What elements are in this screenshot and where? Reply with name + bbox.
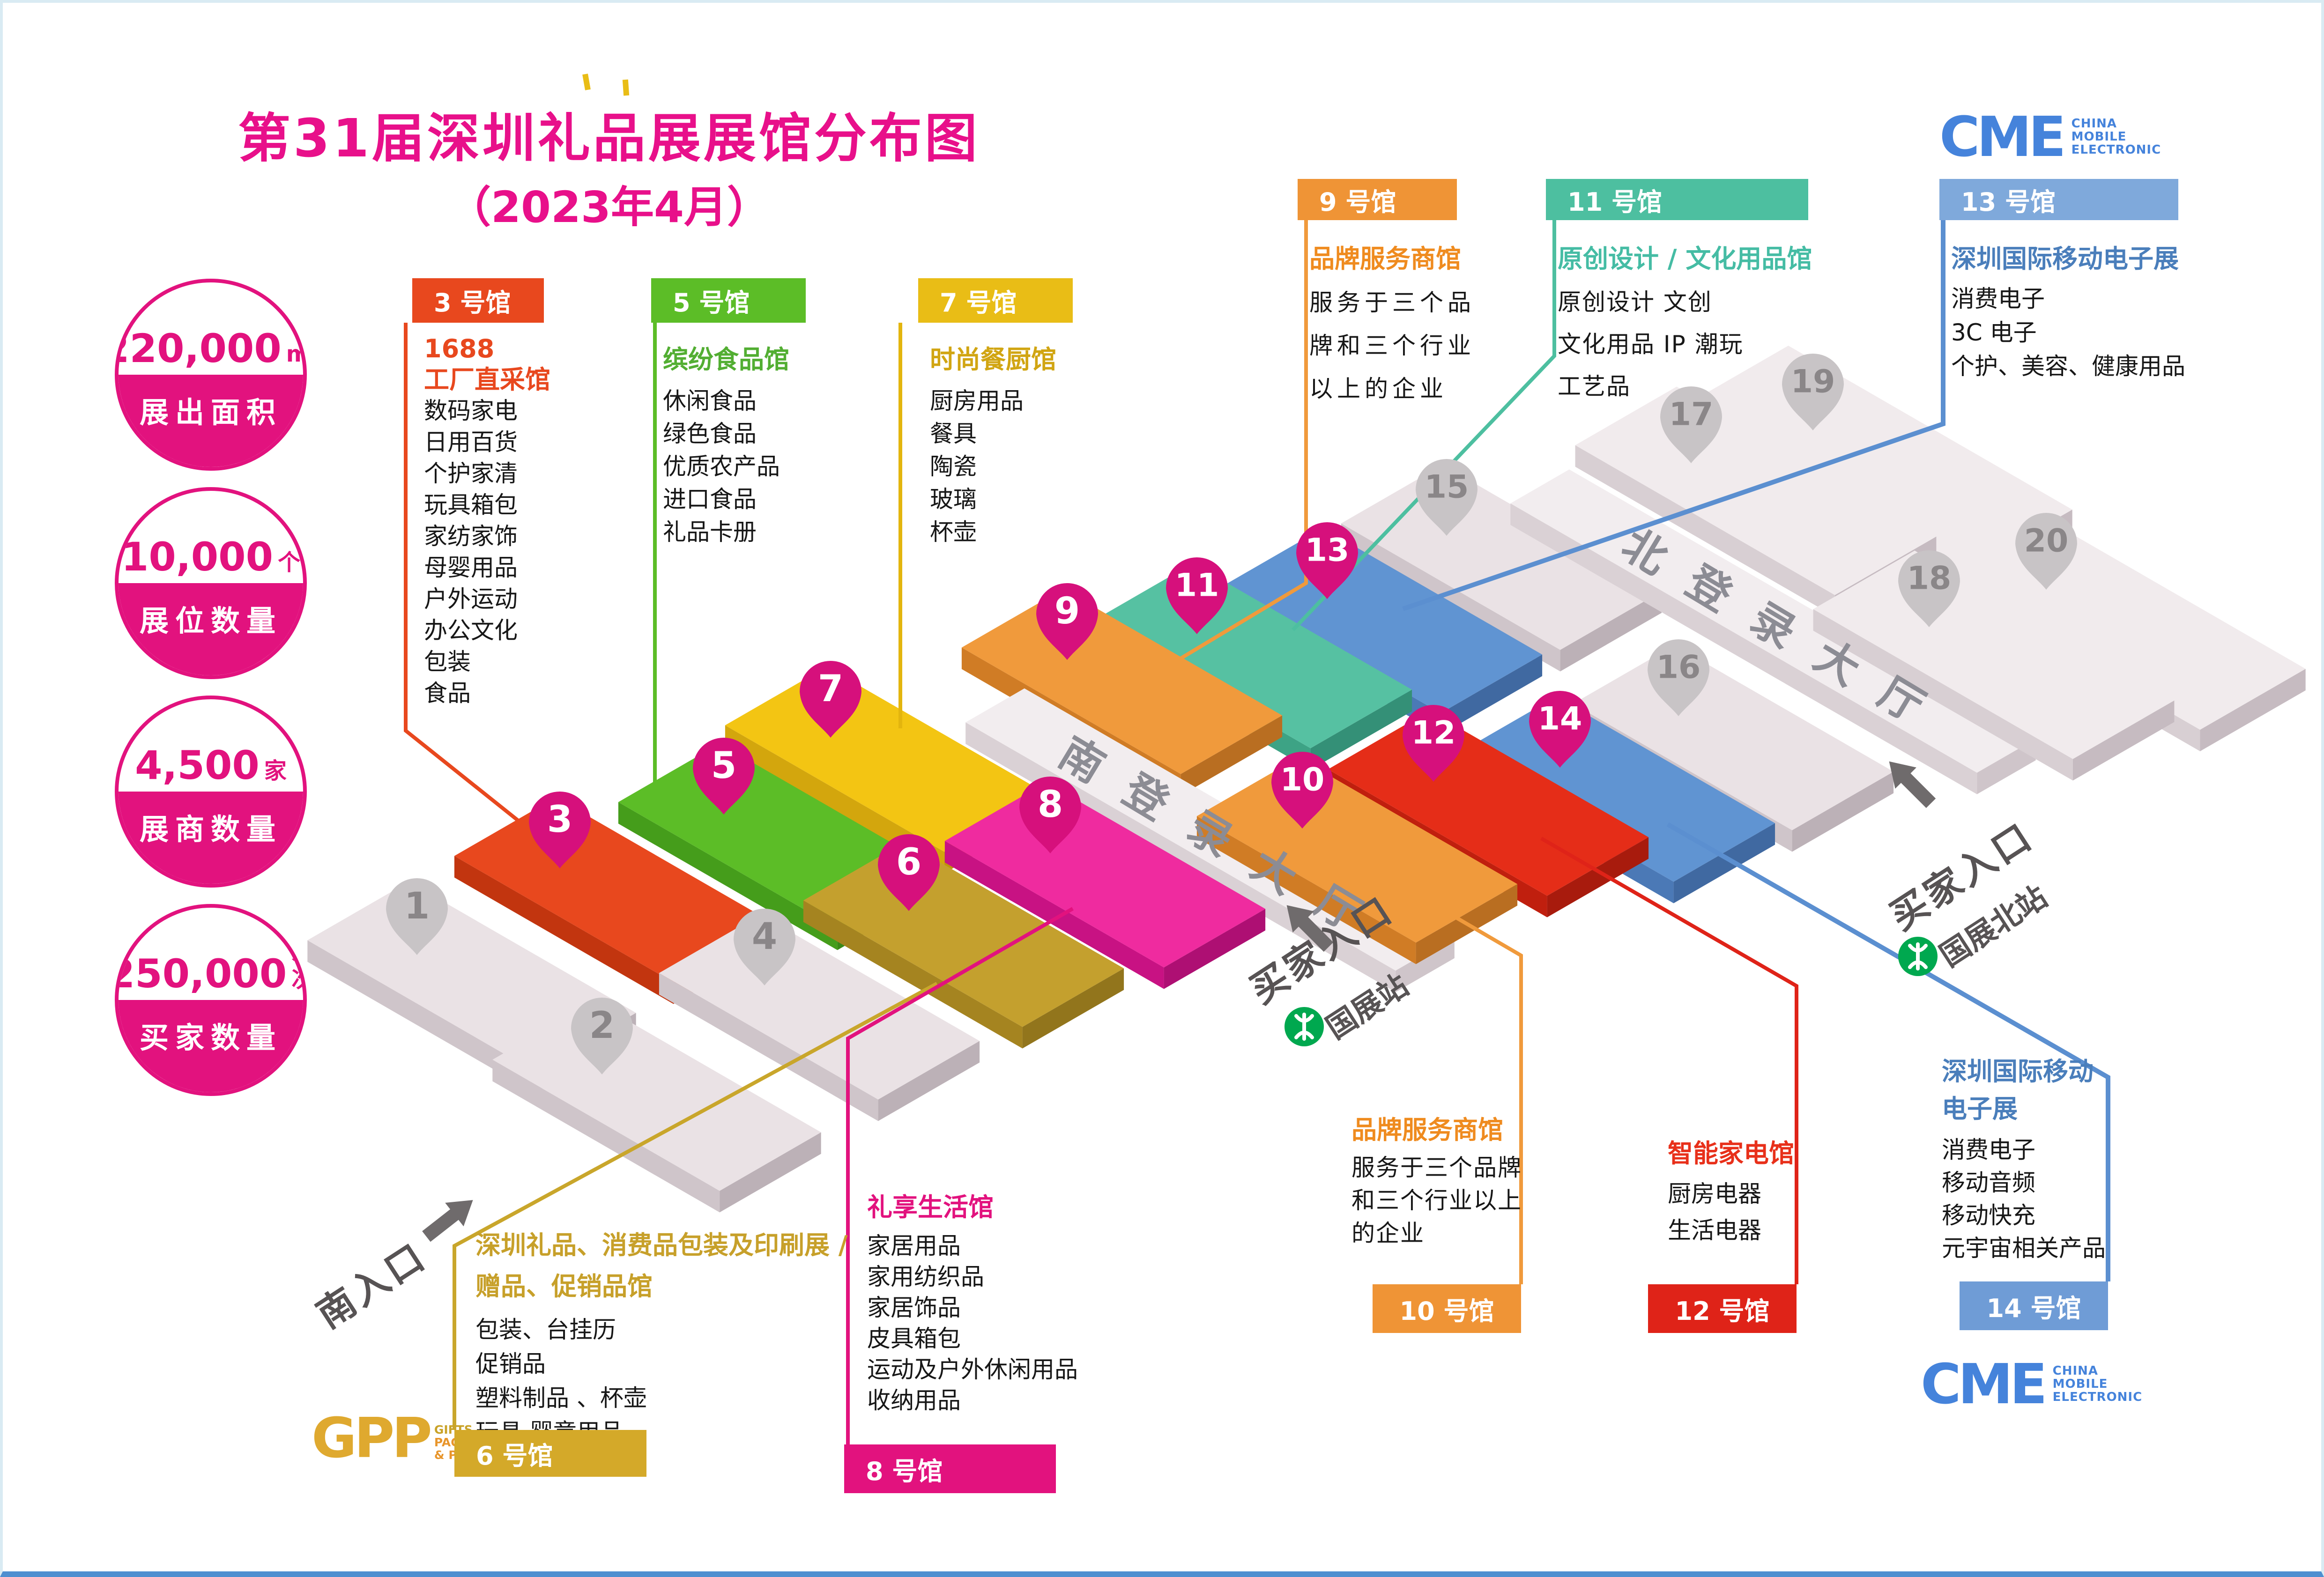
hall12-footer: 12 号馆 xyxy=(1648,1284,1797,1333)
hall8-footer-label: 8 号馆 xyxy=(866,1451,943,1488)
cme-sub-line: ELECTRONIC xyxy=(2072,143,2161,156)
hall11-header-label: 11 号馆 xyxy=(1567,181,1662,218)
stat-value: 250,000 xyxy=(115,954,287,993)
cme-logo-bottom: CME CHINA MOBILE ELECTRONIC xyxy=(1921,1361,2142,1407)
svg-text:20: 20 xyxy=(2024,523,2069,560)
panel-item: 工艺品 xyxy=(1558,365,1812,407)
panel-item: 包装 xyxy=(424,646,550,678)
panel-item: 以上的企业 xyxy=(1309,367,1475,410)
panel-item: 陶瓷 xyxy=(930,450,1056,483)
panel-item: 绿色食品 xyxy=(663,417,789,450)
cme-logo-text: CME xyxy=(1921,1361,2044,1407)
exhibition-floor-map: 南登录大厅北登录大厅南入口买家入口国展站买家入口国展北站191715201318… xyxy=(0,0,2324,1577)
hall14-footer-label: 14 号馆 xyxy=(1987,1288,2081,1325)
hall12-footer-label: 12 号馆 xyxy=(1675,1290,1770,1327)
panel-item: 优质农产品 xyxy=(663,450,789,483)
cme-sub-line: ELECTRONIC xyxy=(2053,1391,2143,1404)
metro-icon xyxy=(1898,937,1938,976)
stat-exhibitors: 4,500家 展商数量 xyxy=(115,696,307,888)
stat-value: 10,000 xyxy=(121,537,273,577)
hall5-header: 5 号馆 xyxy=(651,278,806,323)
cme-sub-line: CHINA xyxy=(2053,1364,2143,1377)
hall6-title2: 赠品、促销品馆 xyxy=(475,1266,848,1307)
hall7-title: 时尚餐厨馆 xyxy=(930,344,1056,375)
panel-item: 个护家清 xyxy=(424,458,550,489)
south-entrance-label: 南入口 xyxy=(309,1234,434,1337)
svg-text:10: 10 xyxy=(1280,762,1325,799)
stat-label: 展位数量 xyxy=(140,597,282,675)
panel-item: 消费电子 xyxy=(1942,1133,2106,1166)
hall13-items: 消费电子3C 电子个护、美容、健康用品 xyxy=(1951,282,2185,383)
hall14-title: 深圳国际移动 xyxy=(1942,1053,2106,1090)
hall12-panel: 智能家电馆 厨房电器生活电器 xyxy=(1668,1138,1794,1249)
svg-text:6: 6 xyxy=(896,841,921,883)
panel-item: 厨房用品 xyxy=(930,385,1056,417)
panel-item: 原创设计 文创 xyxy=(1558,281,1812,323)
panel-item: 皮具箱包 xyxy=(867,1323,1078,1354)
hall5-panel: 缤纷食品馆 休闲食品绿色食品优质农产品进口食品礼品卡册 xyxy=(663,344,789,548)
stat-buyers: 250,000人次 买家数量 xyxy=(115,904,307,1096)
svg-text:15: 15 xyxy=(1425,469,1469,506)
panel-item: 收纳用品 xyxy=(867,1385,1078,1416)
svg-text:7: 7 xyxy=(818,668,843,710)
hall5-title: 缤纷食品馆 xyxy=(663,344,789,375)
panel-item: 玩具箱包 xyxy=(424,489,550,521)
stat-value: 4,500 xyxy=(135,746,260,785)
south-entrance-arrow-icon xyxy=(417,1188,482,1248)
hall6-footer-label: 6 号馆 xyxy=(476,1435,553,1472)
hall6-panel: 深圳礼品、消费品包装及印刷展 / 赠品、促销品馆 包装、台挂历促销品塑料制品 、… xyxy=(475,1225,848,1450)
hall8-panel: 礼享生活馆 家居用品家用纺织品家居饰品皮具箱包运动及户外休闲用品收纳用品 xyxy=(867,1192,1078,1416)
hall8-items: 家居用品家用纺织品家居饰品皮具箱包运动及户外休闲用品收纳用品 xyxy=(867,1230,1078,1416)
panel-item: 休闲食品 xyxy=(663,385,789,417)
panel-item: 办公文化 xyxy=(424,615,550,646)
hall5-items: 休闲食品绿色食品优质农产品进口食品礼品卡册 xyxy=(663,385,789,548)
hall7-items: 厨房用品餐具陶瓷玻璃杯壶 xyxy=(930,385,1056,548)
panel-item: 牌和三个行业 xyxy=(1309,324,1475,367)
hall7-header-label: 7 号馆 xyxy=(940,282,1017,319)
panel-item: 数码家电 xyxy=(424,395,550,427)
hall14-title2: 电子展 xyxy=(1942,1090,2106,1128)
gpp-logo-text: GPP xyxy=(312,1414,430,1461)
page-subtitle: （2023年4月） xyxy=(197,172,1021,235)
stat-unit: 家 xyxy=(264,757,287,785)
panel-item: 消费电子 xyxy=(1951,282,2185,316)
svg-text:13: 13 xyxy=(1305,532,1350,569)
cme-sub-line: MOBILE xyxy=(2072,130,2161,143)
svg-text:4: 4 xyxy=(752,916,777,958)
hall11-header: 11 号馆 xyxy=(1546,179,1808,220)
hall13-header: 13 号馆 xyxy=(1939,179,2178,220)
hall14-panel: 深圳国际移动 电子展 消费电子移动音频移动快充元宇宙相关产品 xyxy=(1942,1053,2106,1265)
hall3-title2: 工厂直采馆 xyxy=(424,364,550,395)
hall12-title: 智能家电馆 xyxy=(1668,1138,1794,1169)
hall9-panel: 品牌服务商馆 服务于三个品牌和三个行业以上的企业 xyxy=(1309,244,1475,410)
panel-item: 玻璃 xyxy=(930,483,1056,516)
metro-station-label: 国展站 xyxy=(1320,968,1414,1046)
cme-logo-top: CME CHINA MOBILE ELECTRONIC xyxy=(1939,113,2161,160)
panel-item: 家居用品 xyxy=(867,1230,1078,1261)
hall9-header-label: 9 号馆 xyxy=(1319,181,1396,218)
decor-tick xyxy=(623,80,629,96)
hall11-panel: 原创设计 / 文化用品馆 原创设计 文创文化用品 IP 潮玩工艺品 xyxy=(1558,244,1812,407)
panel-item: 运动及户外休闲用品 xyxy=(867,1354,1078,1385)
panel-item: 进口食品 xyxy=(663,483,789,516)
panel-item: 家用纺织品 xyxy=(867,1261,1078,1292)
cme-logo-sub: CHINA MOBILE ELECTRONIC xyxy=(2053,1364,2143,1404)
panel-item: 食品 xyxy=(424,678,550,709)
stat-booths: 10,000个 展位数量 xyxy=(115,487,307,679)
stat-label: 展商数量 xyxy=(140,806,282,884)
hall3-items: 数码家电日用百货个护家清玩具箱包家纺家饰母婴用品户外运动办公文化包装食品 xyxy=(424,395,550,709)
stat-area: 220,000m² 展出面积 xyxy=(115,279,307,471)
svg-text:14: 14 xyxy=(1538,701,1582,738)
hall3-title: 1688 xyxy=(424,333,550,364)
hall13-header-label: 13 号馆 xyxy=(1961,181,2056,218)
hall9-desc: 服务于三个品牌和三个行业以上的企业 xyxy=(1309,281,1475,410)
svg-text:8: 8 xyxy=(1038,784,1063,826)
svg-text:5: 5 xyxy=(711,745,736,787)
svg-text:2: 2 xyxy=(589,1005,615,1047)
panel-item: 餐具 xyxy=(930,417,1056,450)
panel-item: 家纺家饰 xyxy=(424,521,550,552)
panel-item: 塑料制品 、杯壶 xyxy=(475,1381,848,1415)
hall12-items: 厨房电器生活电器 xyxy=(1668,1176,1794,1249)
panel-item: 3C 电子 xyxy=(1951,316,2185,349)
hall10-footer-label: 10 号馆 xyxy=(1400,1290,1494,1327)
hall8-title: 礼享生活馆 xyxy=(867,1192,1078,1223)
hall14-items: 消费电子移动音频移动快充元宇宙相关产品 xyxy=(1942,1133,2106,1265)
hall10-footer: 10 号馆 xyxy=(1373,1284,1521,1333)
hall10-title: 品牌服务商馆 xyxy=(1351,1115,1522,1146)
hall3-header-label: 3 号馆 xyxy=(434,282,511,319)
panel-item: 文化用品 IP 潮玩 xyxy=(1558,323,1812,365)
metro-icon xyxy=(1285,1007,1324,1046)
cme-logo-sub: CHINA MOBILE ELECTRONIC xyxy=(2072,117,2161,156)
svg-text:18: 18 xyxy=(1907,560,1952,597)
hall11-desc: 原创设计 文创文化用品 IP 潮玩工艺品 xyxy=(1558,281,1812,407)
hall9-title: 品牌服务商馆 xyxy=(1309,244,1475,274)
hall10-desc: 服务于三个品牌和三个行业以上的企业 xyxy=(1351,1151,1522,1250)
panel-item: 礼品卡册 xyxy=(663,516,789,548)
cme-sub-line: CHINA xyxy=(2072,117,2161,130)
hall11-title: 原创设计 / 文化用品馆 xyxy=(1558,244,1812,274)
hall10-panel: 品牌服务商馆 服务于三个品牌和三个行业以上的企业 xyxy=(1351,1115,1522,1250)
panel-item: 母婴用品 xyxy=(424,552,550,584)
hall7-panel: 时尚餐厨馆 厨房用品餐具陶瓷玻璃杯壶 xyxy=(930,344,1056,548)
cme-logo-text: CME xyxy=(1939,113,2063,160)
hall9-header: 9 号馆 xyxy=(1298,179,1457,220)
panel-item: 个护、美容、健康用品 xyxy=(1951,349,2185,383)
svg-text:3: 3 xyxy=(547,799,572,841)
page-title: 第31届深圳礼品展展馆分布图 xyxy=(197,96,1021,172)
hall6-footer: 6 号馆 xyxy=(454,1430,646,1477)
svg-text:11: 11 xyxy=(1175,567,1219,604)
hall6-title: 深圳礼品、消费品包装及印刷展 / xyxy=(475,1225,848,1266)
panel-item: 的企业 xyxy=(1351,1217,1522,1250)
panel-item: 日用百货 xyxy=(424,427,550,458)
hall7-header: 7 号馆 xyxy=(918,278,1073,323)
stat-label: 买家数量 xyxy=(140,1014,282,1092)
svg-text:12: 12 xyxy=(1411,715,1456,752)
hall13-panel: 深圳国际移动电子展 消费电子3C 电子个护、美容、健康用品 xyxy=(1951,244,2185,383)
panel-item: 户外运动 xyxy=(424,584,550,615)
panel-item: 服务于三个品 xyxy=(1309,281,1475,324)
hall6-items: 包装、台挂历促销品塑料制品 、杯壶玩具 婴童用品 xyxy=(475,1313,848,1450)
panel-item: 移动音频 xyxy=(1942,1166,2106,1199)
hall3-header: 3 号馆 xyxy=(412,278,544,323)
cme-sub-line: MOBILE xyxy=(2053,1377,2143,1391)
hall14-footer: 14 号馆 xyxy=(1960,1281,2108,1330)
svg-text:1: 1 xyxy=(404,885,430,927)
svg-text:16: 16 xyxy=(1656,649,1701,686)
panel-item: 促销品 xyxy=(475,1347,848,1381)
panel-item: 厨房电器 xyxy=(1668,1176,1794,1212)
exhibition-map-poster: { "title": {"line1": "第31届深圳礼品展展馆分布图", "… xyxy=(0,0,2324,1577)
panel-item: 元宇宙相关产品 xyxy=(1942,1232,2106,1265)
hall13-title: 深圳国际移动电子展 xyxy=(1951,244,2185,274)
panel-item: 包装、台挂历 xyxy=(475,1313,848,1347)
hall5-header-label: 5 号馆 xyxy=(673,282,750,319)
panel-item: 生活电器 xyxy=(1668,1212,1794,1249)
stat-value: 220,000 xyxy=(115,329,282,368)
hall8-footer: 8 号馆 xyxy=(844,1444,1056,1493)
stat-label: 展出面积 xyxy=(140,389,282,467)
stat-unit: 个 xyxy=(278,548,300,577)
panel-item: 和三个行业以上 xyxy=(1351,1184,1522,1217)
svg-text:9: 9 xyxy=(1054,590,1080,632)
panel-item: 服务于三个品牌 xyxy=(1351,1151,1522,1184)
hall3-panel: 1688 工厂直采馆 数码家电日用百货个护家清玩具箱包家纺家饰母婴用品户外运动办… xyxy=(424,333,550,709)
panel-item: 移动快充 xyxy=(1942,1199,2106,1232)
panel-item: 家居饰品 xyxy=(867,1292,1078,1323)
panel-item: 杯壶 xyxy=(930,516,1056,548)
